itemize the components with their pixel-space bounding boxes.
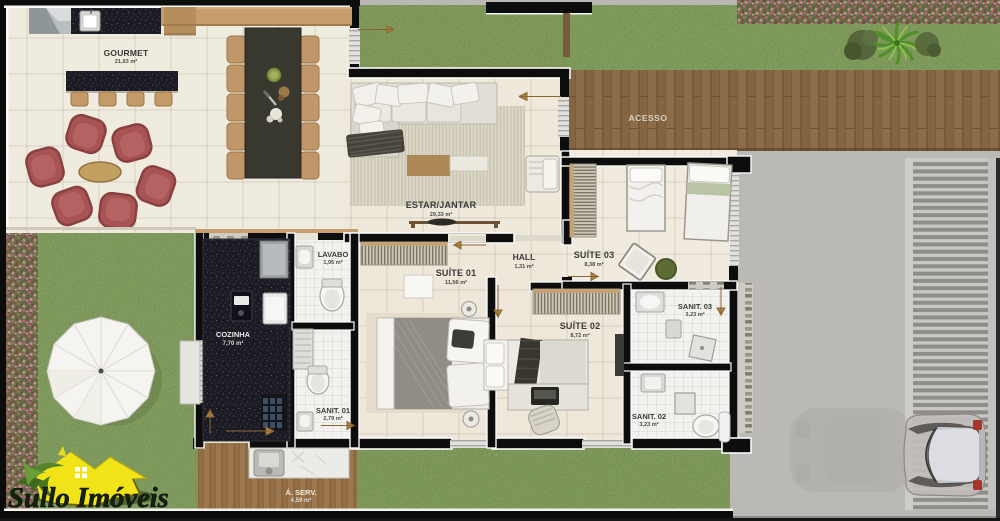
svg-text:Sullo Imóveis: Sullo Imóveis [8,483,169,514]
svg-text:SUÍTE 02: SUÍTE 02 [560,321,601,331]
svg-text:SANIT. 02: SANIT. 02 [632,412,666,421]
svg-text:4,59 m²: 4,59 m² [291,497,312,504]
svg-text:29,33 m²: 29,33 m² [430,211,453,218]
svg-text:SANIT. 03: SANIT. 03 [678,302,712,311]
svg-text:7,70 m²: 7,70 m² [223,340,244,347]
svg-text:11,56 m²: 11,56 m² [445,279,467,286]
svg-text:3,23 m²: 3,23 m² [639,421,658,428]
svg-text:Á. SERV.: Á. SERV. [285,488,316,497]
svg-text:2,79 m²: 2,79 m² [323,415,342,422]
svg-text:ESTAR/JANTAR: ESTAR/JANTAR [406,200,477,210]
svg-text:SUÍTE 03: SUÍTE 03 [574,250,615,260]
svg-text:8,72 m²: 8,72 m² [570,332,589,339]
svg-text:GOURMET: GOURMET [104,48,149,58]
svg-text:21,63 m²: 21,63 m² [115,58,138,65]
svg-text:SUÍTE 01: SUÍTE 01 [436,268,477,278]
svg-text:SANIT. 01: SANIT. 01 [316,406,350,415]
svg-text:1,31 m²: 1,31 m² [514,263,533,270]
svg-text:ACESSO: ACESSO [629,113,668,123]
svg-text:LAVABO: LAVABO [318,250,349,259]
svg-text:3,23 m²: 3,23 m² [685,311,704,318]
svg-text:1,95 m²: 1,95 m² [323,259,342,266]
svg-text:HALL: HALL [513,252,536,262]
svg-text:COZINHA: COZINHA [216,330,251,339]
svg-text:8,38 m²: 8,38 m² [584,261,603,268]
